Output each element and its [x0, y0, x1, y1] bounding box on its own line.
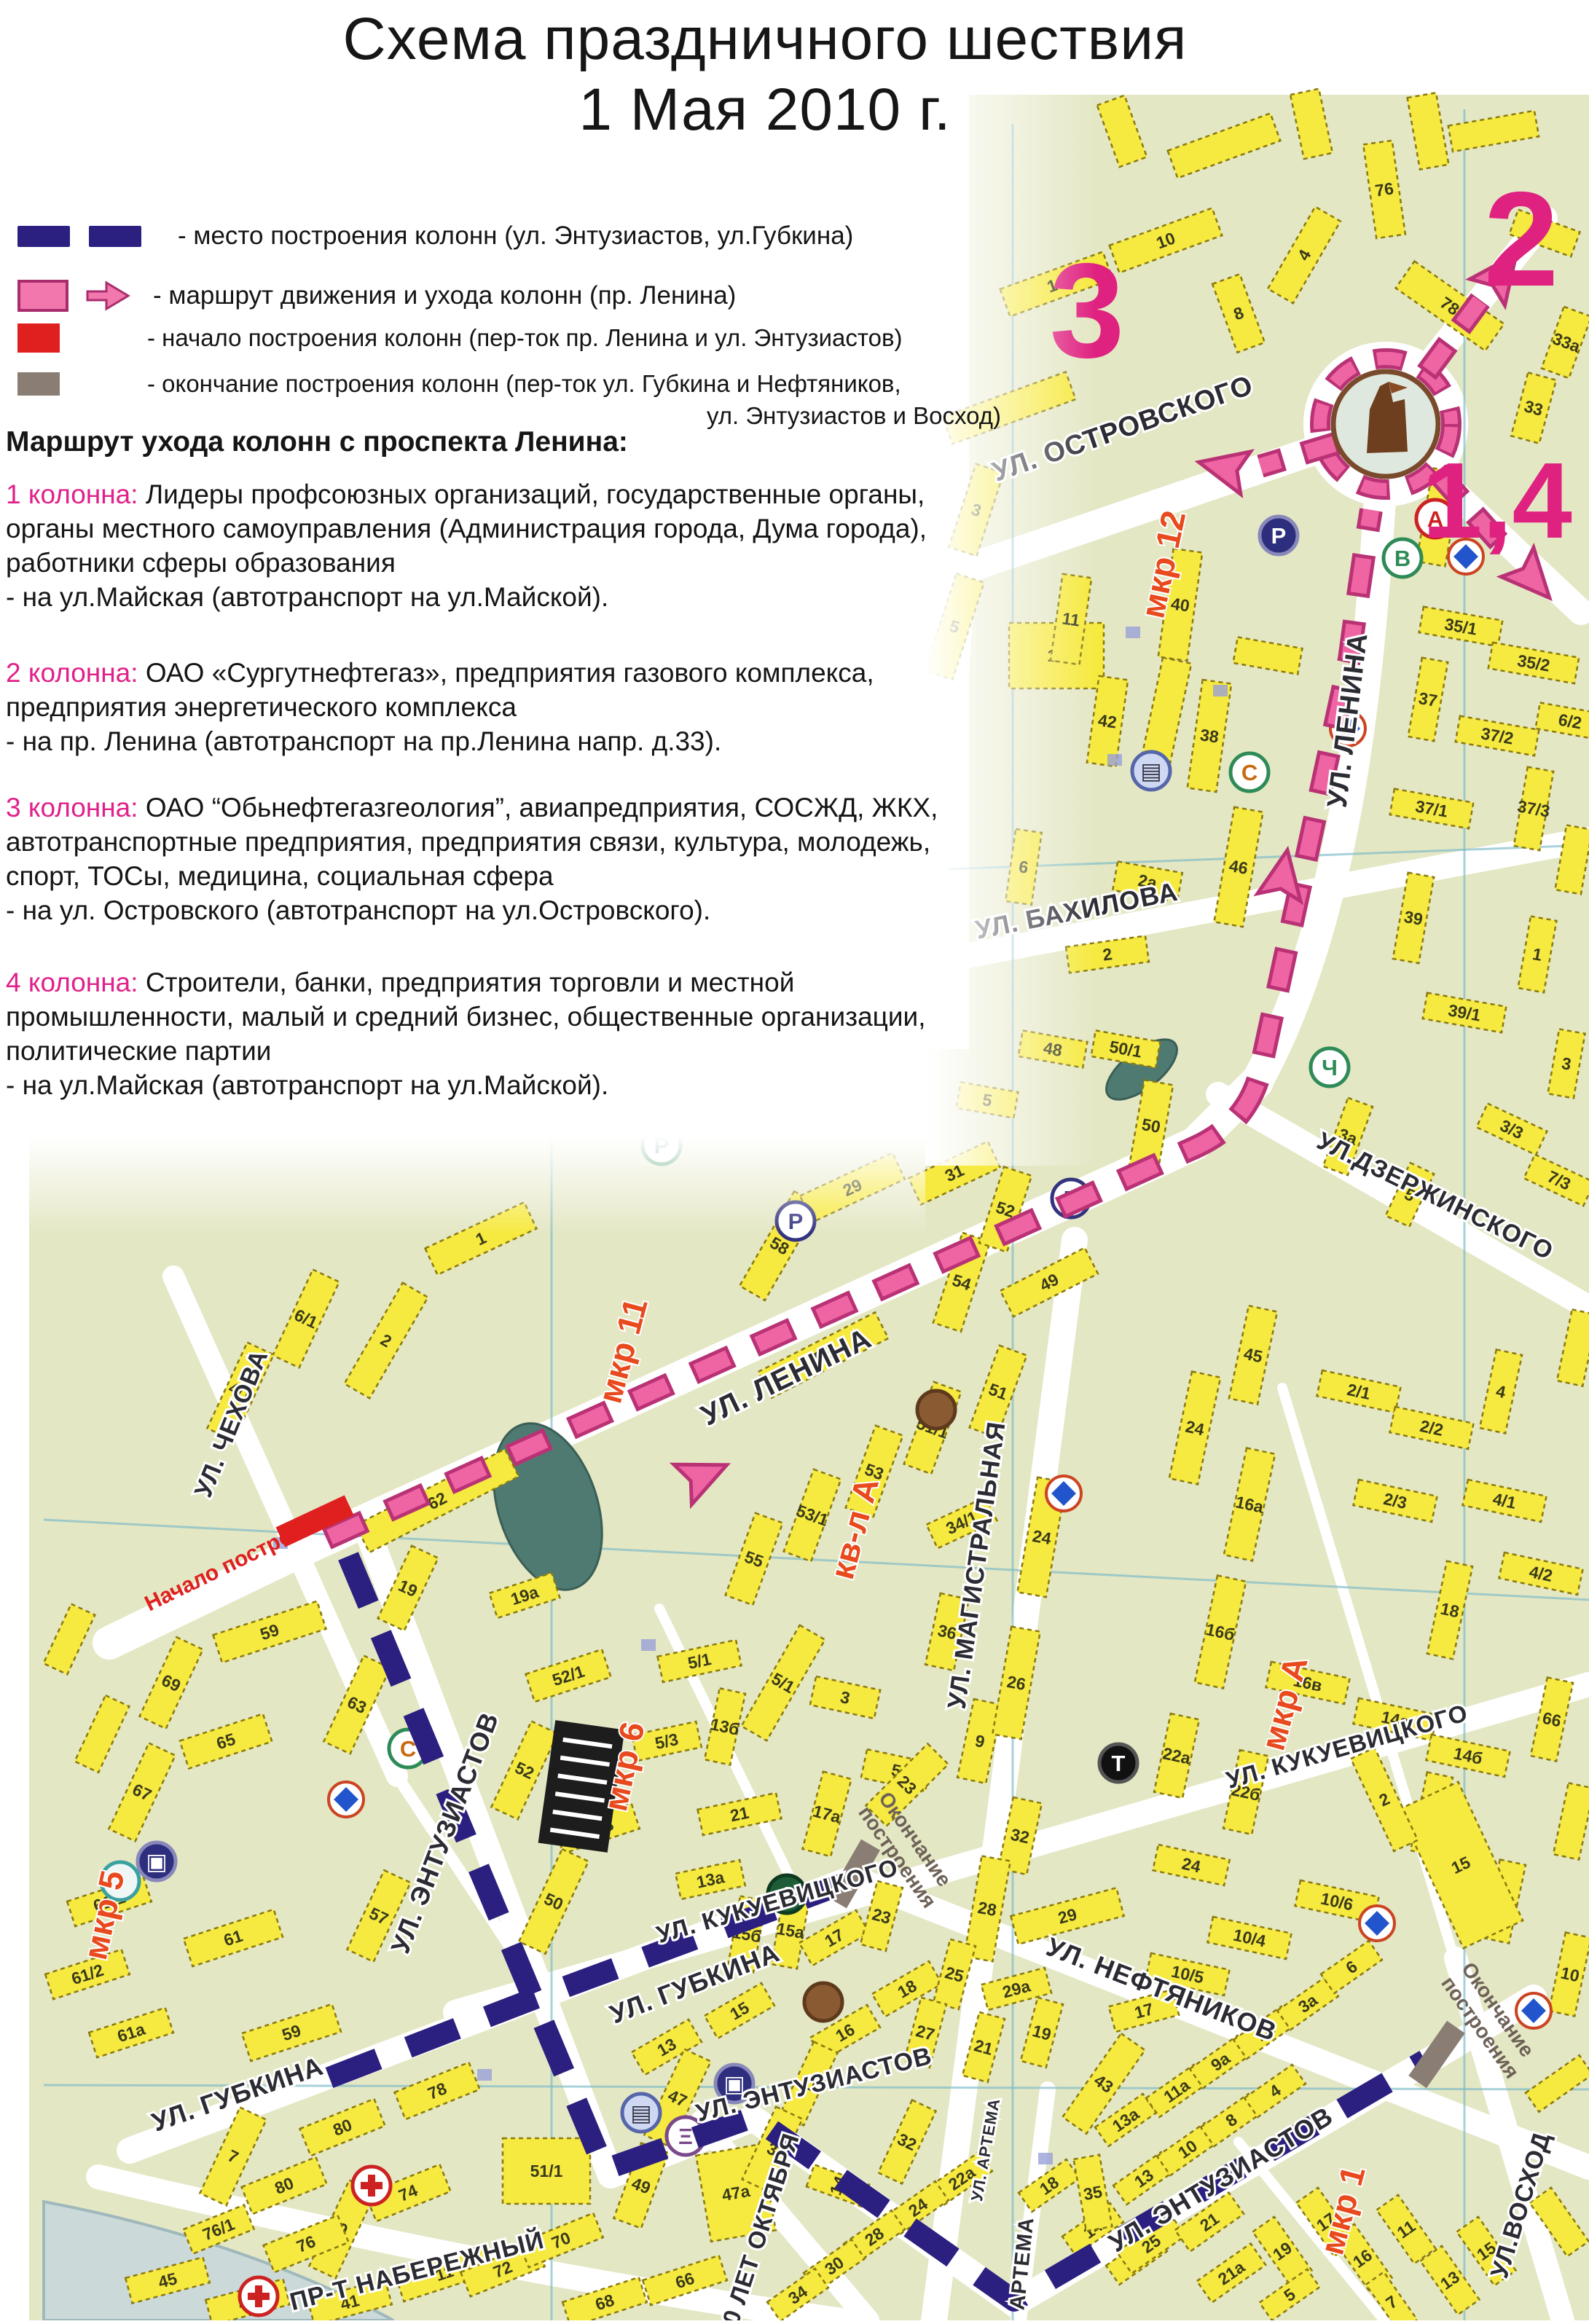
svg-text:▤: ▤	[1140, 758, 1161, 784]
map-poi-icon: Ч	[1311, 1048, 1349, 1086]
svg-text:Р: Р	[1271, 523, 1287, 549]
building-number: 50	[1140, 1115, 1162, 1137]
address-marker	[1213, 685, 1228, 696]
building-number: 38	[1199, 725, 1220, 746]
column-route-number: 1,4	[1422, 441, 1572, 561]
building-number: 66	[1541, 1708, 1563, 1731]
building-number: 46	[1228, 856, 1249, 878]
building-number: 76	[1374, 178, 1395, 200]
map-poi-icon: В	[1384, 539, 1421, 577]
map-bg-bottom	[29, 1049, 1589, 2320]
city-map: 141084767833а33351а40384211462а263535/13…	[0, 0, 1589, 2320]
map-poi-icon	[240, 2277, 278, 2315]
page: { "title": {"line1": "Схема праздничного…	[0, 0, 1589, 2320]
map-poi-icon: С	[1231, 753, 1268, 791]
map-poi-icon: ▣	[138, 1842, 176, 1880]
svg-text:▣: ▣	[146, 1849, 167, 1874]
map-poi-icon	[1360, 1906, 1394, 1941]
building-number: 42	[1097, 710, 1118, 731]
svg-text:Ч: Ч	[1322, 1055, 1338, 1080]
text-zone-fade-bottom	[0, 1137, 925, 1235]
building-number: 10	[1559, 1963, 1581, 1986]
map-poi-icon: ▤	[622, 2094, 660, 2132]
building-number: 26	[1005, 1672, 1027, 1694]
address-marker	[1126, 627, 1140, 638]
map-poi-icon	[329, 1782, 364, 1817]
building: 51/1	[503, 2138, 590, 2204]
map-poi-icon	[804, 1983, 842, 2021]
building-number: 28	[976, 1898, 998, 1920]
map-svg: 141084767833а33351а40384211462а263535/13…	[0, 0, 1589, 2320]
building-number: 51/1	[530, 2162, 563, 2180]
address-marker	[477, 2069, 492, 2081]
address-marker	[1038, 2153, 1053, 2164]
svg-text:Т: Т	[1112, 1751, 1126, 1776]
svg-text:Ξ: Ξ	[678, 2124, 693, 2149]
address-marker	[641, 1639, 656, 1651]
column-route-number: 2	[1484, 165, 1559, 315]
map-poi-icon	[1046, 1476, 1081, 1511]
map-poi-icon: Т	[1099, 1744, 1137, 1782]
svg-text:В: В	[1394, 546, 1411, 571]
text-zone-fade-right	[925, 0, 1096, 1166]
building-number: 35	[1082, 2182, 1104, 2204]
building-number: 24	[1031, 1526, 1053, 1548]
map-poi-icon: ▤	[1132, 752, 1170, 790]
map-poi-icon: Р	[1260, 517, 1298, 554]
svg-text:С: С	[1241, 760, 1258, 785]
building-number: 32	[1009, 1825, 1031, 1848]
building-number: 39	[1402, 907, 1424, 929]
building-number: 37	[1417, 688, 1439, 710]
address-marker	[1107, 754, 1122, 766]
svg-text:▤: ▤	[630, 2100, 651, 2126]
text-zone-mask	[0, 0, 925, 1137]
map-poi-icon	[917, 1391, 955, 1429]
map-poi-icon	[353, 2167, 391, 2205]
building-number: 6/2	[1557, 710, 1583, 732]
